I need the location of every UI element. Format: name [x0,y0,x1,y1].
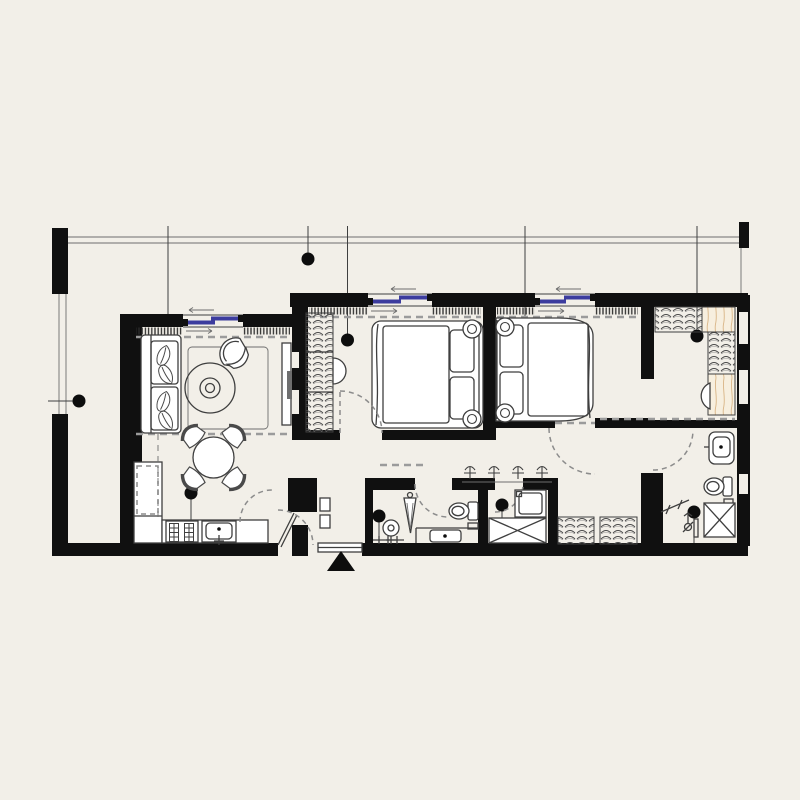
terrace-railing [59,294,66,414]
armchair [213,333,254,374]
wardrobe-right [708,332,735,374]
shoe-cabinet [320,498,330,511]
terrace-edge-lines [68,237,741,243]
bedroom-2 [496,318,595,474]
bedside-lamp [496,404,514,422]
vanity-stool [333,358,346,384]
desk-chair [701,383,710,409]
towel-rail [373,536,404,544]
kitchen-door-swing [240,490,272,522]
wall-niche [292,390,299,414]
guest-toilet [449,502,478,529]
shower-tray [489,518,546,543]
bedside-lamp [463,410,481,428]
dressing-desk [708,374,735,415]
water-heater-column [404,493,416,534]
wardrobe-top-shelf [702,307,735,332]
bed-1 [372,320,483,428]
living-room [141,333,292,433]
wall-niche [739,370,748,404]
ensuite-vanity [704,432,734,464]
wardrobe-bed1 [306,313,333,432]
wall-niche [739,474,748,494]
vanity-counter [416,528,478,543]
ensuite-door-swing [653,430,693,470]
washing-machine [515,490,546,517]
entrance-triangle-marker [327,551,355,571]
bedside-lamp [463,320,481,338]
slide-arrow-left [189,308,214,313]
bedroom-1 [306,313,483,433]
bedroom-2-door-swing [549,428,595,474]
ensuite-toilet [704,477,733,505]
dining-table [193,437,234,478]
window-bedroom-1 [368,287,432,314]
bedside-lamp [496,318,514,336]
window-bedroom-2 [535,287,595,314]
guest-bathroom [373,484,478,544]
slide-arrow-right [186,329,212,334]
window-living [183,308,243,334]
ensuite-bathroom [661,432,735,537]
bed-2 [496,318,593,422]
dining-area [179,422,249,494]
guest-bath-door-swing [415,484,448,517]
floor-plan-page [0,0,800,800]
shoe-cabinet [320,515,330,528]
ensuite-towel-rail [661,500,689,514]
sofa [141,335,181,433]
ensuite-shower [704,503,735,537]
wall-niche [739,312,748,344]
floor-plan-canvas [0,0,800,800]
wall-niche [292,352,299,368]
tv-console [282,343,292,425]
wardrobe-top [655,307,702,332]
hall-closets [558,517,637,544]
coffee-table [185,363,235,413]
